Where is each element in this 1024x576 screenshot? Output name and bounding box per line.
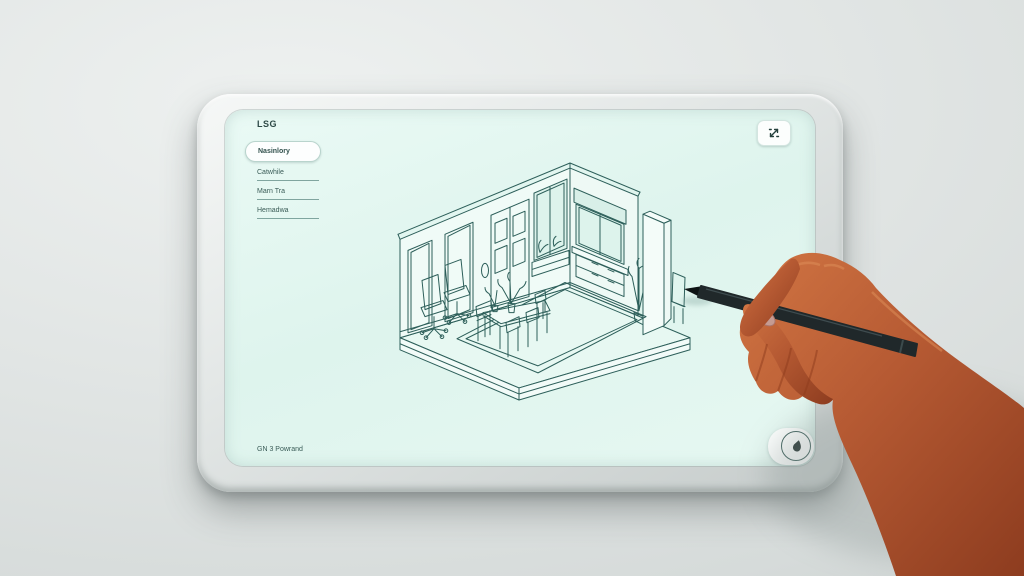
- tablet-device: LSG Nasinlory Catwhile Marn Tra Hemadwa: [197, 94, 843, 492]
- logo-circle: [781, 431, 811, 461]
- sidebar-item[interactable]: Catwhile: [257, 169, 319, 181]
- sidebar-item[interactable]: Hemadwa: [257, 207, 319, 219]
- pen-drop-icon: [789, 438, 803, 454]
- sidebar-item[interactable]: Marn Tra: [257, 188, 319, 200]
- sidebar-item-label: Hemadwa: [257, 207, 289, 214]
- sidebar-item-label: Catwhile: [257, 169, 284, 176]
- expand-arrows-icon: [766, 126, 782, 140]
- sidebar-item-label: Nasinlory: [258, 148, 290, 155]
- brand-label: LSG: [257, 119, 277, 129]
- sidebar-item-underline: [257, 180, 319, 181]
- expand-button[interactable]: [757, 120, 791, 146]
- sidebar-item-selected[interactable]: Nasinlory: [245, 141, 321, 162]
- sidebar-item-label: Marn Tra: [257, 188, 285, 195]
- sidebar-item-underline: [257, 199, 319, 200]
- scene: LSG Nasinlory Catwhile Marn Tra Hemadwa: [0, 0, 1024, 576]
- sidebar-item-underline: [257, 218, 319, 219]
- footer-caption: GN 3 Powrand: [257, 446, 303, 453]
- logo-badge-button[interactable]: [768, 428, 814, 465]
- tablet-screen: LSG Nasinlory Catwhile Marn Tra Hemadwa: [225, 110, 815, 466]
- room-drawing-canvas[interactable]: [388, 160, 706, 402]
- sidebar: Nasinlory Catwhile Marn Tra Hemadwa: [245, 141, 335, 219]
